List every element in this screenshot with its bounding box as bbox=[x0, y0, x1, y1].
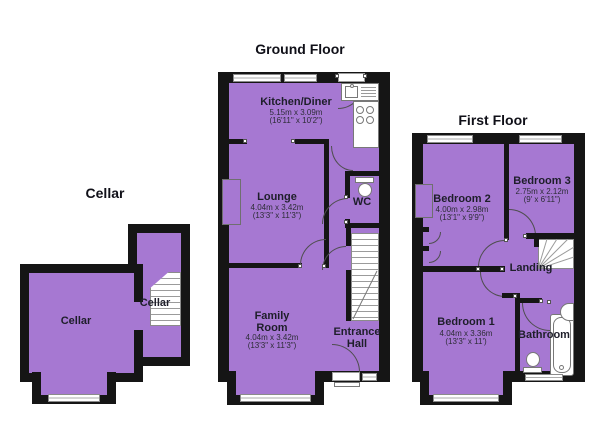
room-size-imperial: (13'3" x 11'3") bbox=[222, 342, 322, 350]
window bbox=[433, 394, 499, 402]
wall-segment bbox=[534, 233, 539, 247]
window bbox=[525, 374, 563, 381]
room-label-landing: Landing bbox=[503, 263, 559, 275]
window bbox=[48, 394, 100, 402]
floorplan-canvas: Cellar Cellar Cellar Ground Floor bbox=[0, 0, 600, 436]
stairs-rail bbox=[351, 233, 379, 321]
hob-burner-icon bbox=[366, 116, 374, 124]
toilet-icon bbox=[523, 367, 542, 373]
cellar-floor-title: Cellar bbox=[55, 185, 155, 201]
family-room-bay bbox=[236, 365, 315, 395]
door-jamb bbox=[363, 74, 367, 78]
wall-segment bbox=[412, 227, 429, 232]
door-jamb bbox=[335, 74, 339, 78]
door-jamb bbox=[291, 139, 295, 143]
wall-segment bbox=[229, 263, 302, 268]
wall-segment bbox=[346, 270, 351, 321]
door-jamb bbox=[344, 195, 348, 199]
room-label-cellar-stairs: Cellar bbox=[130, 298, 180, 310]
back-door-opening bbox=[338, 73, 365, 82]
room-label-entrance-hall: Entrance Hall bbox=[330, 327, 384, 351]
faucet-icon bbox=[350, 84, 354, 88]
cellar-bay bbox=[41, 366, 107, 395]
wall-segment bbox=[412, 246, 429, 251]
door-jamb bbox=[513, 294, 517, 298]
wall-segment bbox=[345, 171, 350, 198]
door-jamb bbox=[547, 300, 551, 304]
door-jamb bbox=[344, 220, 348, 224]
room-size-imperial: (13'3" x 11'3") bbox=[227, 212, 327, 220]
drain-icon bbox=[559, 365, 564, 370]
first-floor-title: First Floor bbox=[428, 112, 558, 128]
door-jamb bbox=[539, 299, 543, 303]
window bbox=[233, 74, 281, 82]
toilet-icon bbox=[526, 352, 540, 367]
hob-burner-icon bbox=[356, 116, 364, 124]
door-jamb bbox=[322, 264, 326, 268]
window bbox=[427, 135, 473, 143]
room-label-bathroom: Bathroom bbox=[512, 330, 576, 342]
window bbox=[519, 135, 562, 143]
room-label-bedroom1: Bedroom 1 bbox=[416, 317, 516, 329]
door-jamb bbox=[500, 267, 504, 271]
door-step bbox=[334, 382, 360, 387]
window bbox=[240, 394, 311, 402]
hob-burner-icon bbox=[356, 106, 364, 114]
sink-icon bbox=[560, 303, 574, 321]
room-size-imperial: (13'3" x 11') bbox=[416, 338, 516, 346]
room-size-imperial: (9' x 6'11") bbox=[497, 196, 587, 204]
room-label-family-room: Family Room bbox=[242, 311, 302, 335]
drainer-icon bbox=[361, 87, 376, 98]
room-size-imperial: (13'1" x 9'9") bbox=[412, 214, 512, 222]
door-jamb bbox=[476, 267, 480, 271]
wall-segment bbox=[345, 171, 379, 176]
room-label-wc: WC bbox=[345, 197, 379, 209]
ground-floor-title: Ground Floor bbox=[230, 41, 370, 57]
door-jamb bbox=[504, 238, 508, 242]
window bbox=[284, 74, 317, 82]
door-jamb bbox=[243, 139, 247, 143]
door-jamb bbox=[523, 234, 527, 238]
front-door-opening bbox=[332, 372, 360, 381]
door-jamb bbox=[298, 264, 302, 268]
room-size-imperial: (16'11" x 10'2") bbox=[246, 117, 346, 125]
window bbox=[362, 373, 377, 381]
bedroom1-bay bbox=[429, 365, 503, 395]
room-label-cellar-main: Cellar bbox=[41, 316, 111, 328]
wall-segment bbox=[346, 228, 351, 246]
toilet-icon bbox=[358, 183, 372, 197]
hob-burner-icon bbox=[366, 106, 374, 114]
